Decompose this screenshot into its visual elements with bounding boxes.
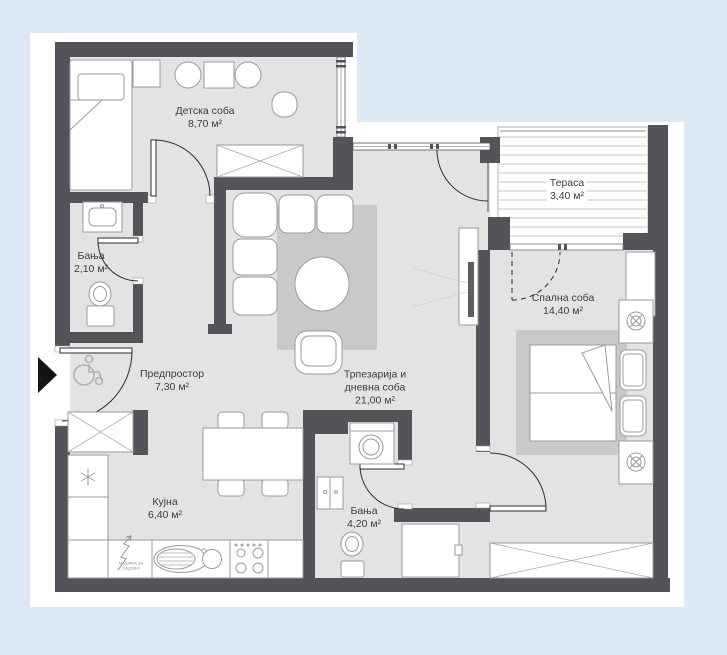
- wall-bath1-bottom: [55, 332, 143, 343]
- double-bed: [530, 345, 616, 441]
- single-bed: [70, 60, 132, 190]
- wall-children-bottom-right: [214, 177, 353, 190]
- wall-bath2-top-corner: [303, 410, 348, 434]
- bath2-vanity: [317, 477, 343, 509]
- stool: [175, 62, 201, 88]
- tv-screen: [468, 262, 474, 317]
- nightstand-with-lamp: [619, 300, 653, 343]
- nightstand: [133, 60, 160, 87]
- wall-corridor-south: [394, 508, 490, 522]
- dining-table: [203, 428, 303, 480]
- living-room-window: [353, 143, 490, 150]
- wall-hall-divider: [214, 190, 226, 332]
- wall-bottom: [55, 578, 670, 592]
- wall-terrace-right: [648, 125, 668, 250]
- wall-washer-niche: [398, 422, 412, 465]
- wall-bath1-right-lower: [133, 279, 143, 332]
- coffee-table: [295, 257, 349, 311]
- dining-chair: [218, 479, 244, 496]
- floor-plan-canvas: Детска соба 8,70 м² Бања 2,10 м² Предпро…: [0, 0, 727, 655]
- hall-wardrobe: [68, 412, 133, 452]
- armchair: [295, 331, 342, 374]
- wall-entry-closet-stub: [133, 410, 148, 455]
- bedroom-terrace-sill: [510, 244, 623, 250]
- dining-chair: [218, 412, 244, 429]
- floor-plan-drawing: [0, 0, 727, 655]
- children-wardrobe: [217, 145, 303, 177]
- wall-bath2-left: [303, 410, 315, 578]
- fridge-column: [68, 455, 108, 578]
- dining-chair: [262, 479, 288, 496]
- pillow: [620, 350, 646, 390]
- nightstand-with-lamp: [619, 441, 653, 484]
- dining-chair: [262, 412, 288, 429]
- wall-terrace-step: [623, 233, 668, 250]
- wall-bath1-top: [70, 192, 148, 203]
- shower-handle: [455, 545, 462, 555]
- children-room-window: [336, 57, 346, 137]
- bedroom-wardrobe: [490, 543, 653, 578]
- wall-left-upper: [55, 42, 70, 352]
- kitchen-sink: [154, 546, 222, 573]
- wall-top: [55, 42, 353, 57]
- wall-terrace-left-block: [488, 217, 510, 250]
- kids-desk: [204, 62, 234, 88]
- wall-window-corner-block: [333, 137, 353, 190]
- pillow: [620, 396, 646, 436]
- washing-machine: [350, 423, 394, 464]
- terrace-deck: [498, 127, 648, 247]
- wall-hall-divider-cap: [208, 324, 232, 334]
- bath1-sink: [83, 202, 122, 232]
- stool: [235, 62, 261, 88]
- desk-chair: [272, 92, 297, 117]
- shower-cabin: [402, 524, 462, 577]
